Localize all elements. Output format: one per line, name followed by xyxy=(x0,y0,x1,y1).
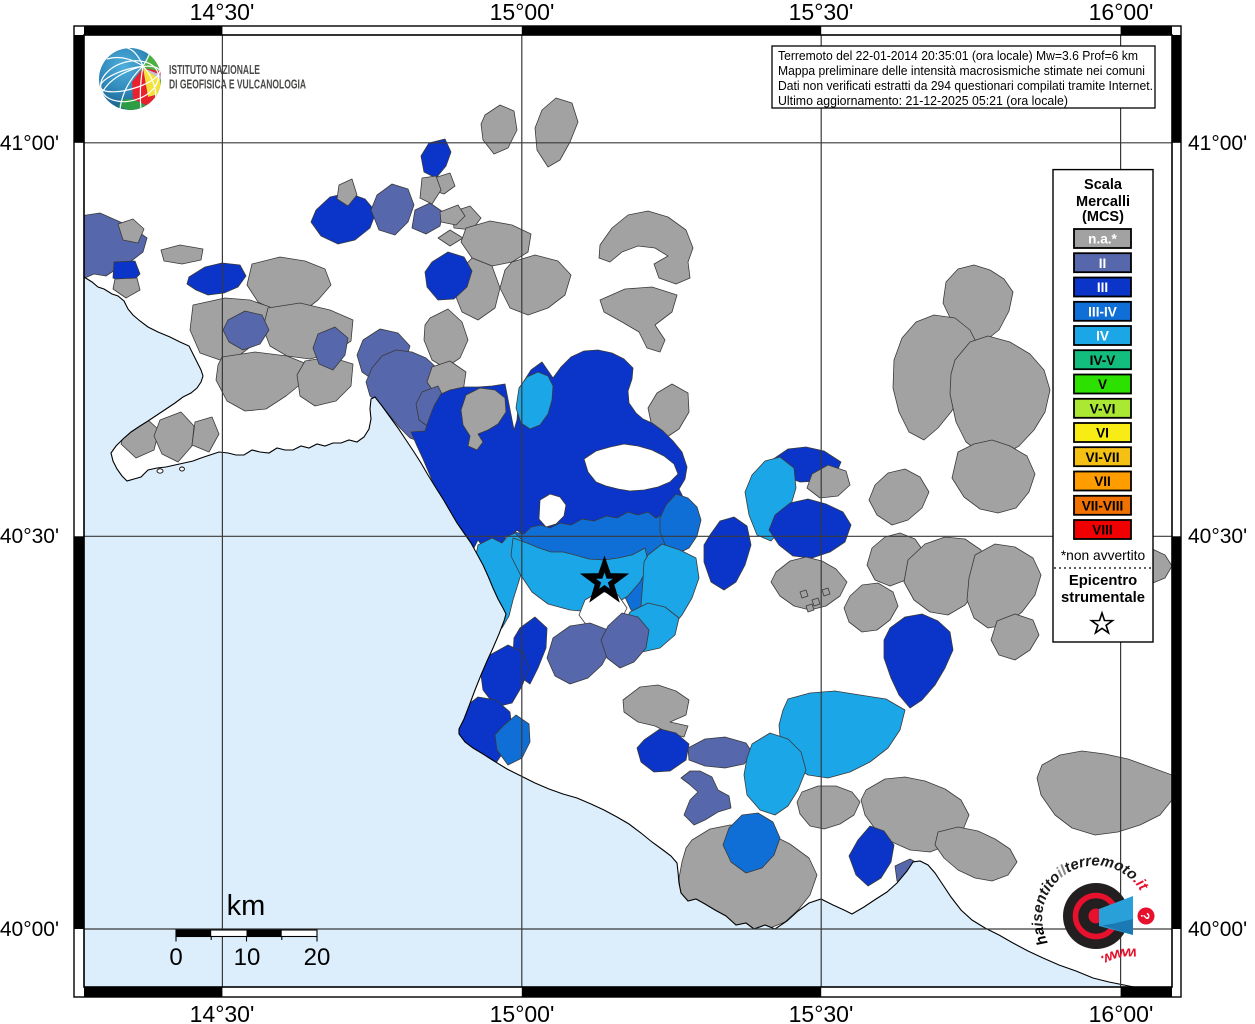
svg-text:40°00': 40°00' xyxy=(1188,918,1247,941)
svg-text:15°00': 15°00' xyxy=(490,1001,555,1024)
svg-text:n.a.*: n.a.* xyxy=(1088,232,1117,247)
svg-text:15°00': 15°00' xyxy=(490,0,555,25)
svg-text:16°00': 16°00' xyxy=(1089,1001,1154,1024)
svg-text:15°30': 15°30' xyxy=(789,1001,854,1024)
svg-text:VIII: VIII xyxy=(1092,523,1112,538)
svg-text:41°00': 41°00' xyxy=(0,132,59,155)
svg-text:VII: VII xyxy=(1094,474,1111,489)
svg-text:?: ? xyxy=(1138,912,1152,919)
svg-text:Dati non verificati estratti d: Dati non verificati estratti da 294 ques… xyxy=(778,79,1153,93)
svg-text:VI-VII: VI-VII xyxy=(1086,450,1120,465)
svg-text:V: V xyxy=(1098,377,1107,392)
svg-text:Ultimo aggiornamento: 21-12-20: Ultimo aggiornamento: 21-12-2025 05:21 (… xyxy=(778,94,1068,108)
svg-text:III: III xyxy=(1097,280,1108,295)
svg-text:Scala: Scala xyxy=(1084,177,1123,193)
svg-text:V-VI: V-VI xyxy=(1090,401,1116,416)
svg-text:VI: VI xyxy=(1096,426,1109,441)
svg-text:40°30': 40°30' xyxy=(1188,525,1247,548)
svg-text:km: km xyxy=(227,890,266,922)
svg-text:Mappa preliminare delle intens: Mappa preliminare delle intensità macros… xyxy=(778,64,1145,78)
svg-text:40°00': 40°00' xyxy=(0,918,59,941)
svg-text:0: 0 xyxy=(169,944,182,971)
svg-text:20: 20 xyxy=(304,944,331,971)
svg-text:VII-VIII: VII-VIII xyxy=(1082,498,1124,513)
svg-text:14°30': 14°30' xyxy=(190,0,255,25)
svg-text:ISTITUTO NAZIONALE: ISTITUTO NAZIONALE xyxy=(169,62,260,77)
svg-text:10: 10 xyxy=(234,944,261,971)
svg-text:16°00': 16°00' xyxy=(1089,0,1154,25)
svg-text:40°30': 40°30' xyxy=(0,525,59,548)
svg-text:strumentale: strumentale xyxy=(1061,590,1145,606)
svg-text:IV-V: IV-V xyxy=(1090,353,1116,368)
svg-text:DI GEOFISICA E VULCANOLOGIA: DI GEOFISICA E VULCANOLOGIA xyxy=(169,77,306,92)
svg-text:III-IV: III-IV xyxy=(1088,304,1117,319)
svg-text:Terremoto del 22-01-2014 20:35: Terremoto del 22-01-2014 20:35:01 (ora l… xyxy=(778,49,1138,63)
svg-text:Epicentro: Epicentro xyxy=(1069,573,1137,589)
svg-text:41°00': 41°00' xyxy=(1188,132,1247,155)
svg-text:II: II xyxy=(1099,256,1107,271)
svg-text:14°30': 14°30' xyxy=(190,1001,255,1024)
svg-text:15°30': 15°30' xyxy=(789,0,854,25)
svg-text:(MCS): (MCS) xyxy=(1082,209,1124,225)
svg-text:Mercalli: Mercalli xyxy=(1076,194,1130,210)
svg-text:*non avvertito: *non avvertito xyxy=(1061,548,1146,563)
svg-text:IV: IV xyxy=(1096,329,1109,344)
